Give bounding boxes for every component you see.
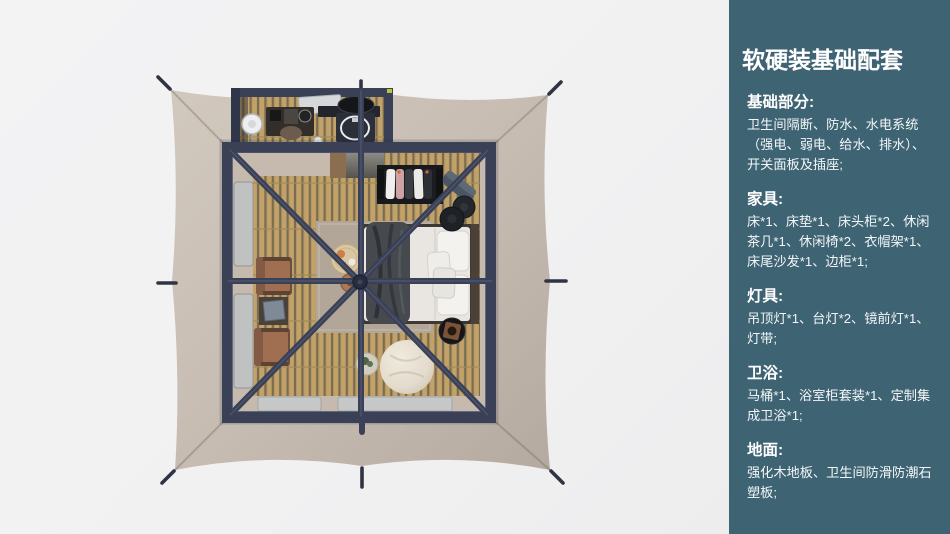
section-bathroom-body: 马桶*1、浴室柜套装*1、定制集 成卫浴*1; <box>747 386 934 426</box>
guy-stake-top-left <box>158 77 170 89</box>
window-bottom-right <box>338 397 452 411</box>
side-shelf <box>259 297 288 325</box>
tent-render-svg <box>0 0 729 534</box>
section-basics-body: 卫生间隔断、防水、水电系统 （强电、弱电、给水、排水）、 开关面板及插座; <box>747 115 934 175</box>
window-left-top <box>234 182 253 266</box>
section-bathroom: 卫浴: 马桶*1、浴室柜套装*1、定制集 成卫浴*1; <box>747 366 934 426</box>
headboard <box>471 224 479 324</box>
tent-render <box>0 0 729 534</box>
door-mat <box>330 153 346 178</box>
guy-stake-top-right <box>549 82 561 94</box>
section-floor: 地面: 强化木地板、卫生间防滑防潮石 塑板; <box>747 443 934 503</box>
section-lighting-body: 吊顶灯*1、台灯*2、镜前灯*1、 灯带; <box>747 309 934 349</box>
section-lighting: 灯具: 吊顶灯*1、台灯*2、镜前灯*1、 灯带; <box>747 289 934 349</box>
spec-sidebar: 软硬装基础配套 基础部分: 卫生间隔断、防水、水电系统 （强电、弱电、给水、排水… <box>729 0 950 534</box>
annex-round-mirror <box>338 97 374 114</box>
section-furniture-heading: 家具: <box>747 192 934 208</box>
annex-corner-marker <box>387 89 392 93</box>
garment-dark-2 <box>424 169 432 199</box>
garment-white-1 <box>385 169 395 199</box>
section-furniture-body: 床*1、床垫*1、床头柜*2、休闲 茶几*1、休闲椅*2、衣帽架*1、 床尾沙发… <box>747 212 934 272</box>
sidebar-title: 软硬装基础配套 <box>742 46 934 74</box>
slide: 软硬装基础配套 基础部分: 卫生间隔断、防水、水电系统 （强电、弱电、给水、排水… <box>0 0 950 534</box>
section-floor-body: 强化木地板、卫生间防滑防潮石 塑板; <box>747 463 934 503</box>
garment-white-2 <box>413 169 423 199</box>
side-table <box>439 318 465 344</box>
annex-right-wall <box>384 88 393 148</box>
section-floor-heading: 地面: <box>747 443 934 459</box>
section-furniture: 家具: 床*1、床垫*1、床头柜*2、休闲 茶几*1、休闲椅*2、衣帽架*1、 … <box>747 192 934 272</box>
section-basics: 基础部分: 卫生间隔断、防水、水电系统 （强电、弱电、给水、排水）、 开关面板及… <box>747 95 934 175</box>
annex-left-wall <box>231 88 240 148</box>
lounge-chair-top <box>256 257 292 295</box>
section-lighting-heading: 灯具: <box>747 289 934 305</box>
guy-stake-bottom-left <box>162 471 174 483</box>
clothes-rack <box>377 165 443 204</box>
window-bottom-left <box>258 397 321 411</box>
annex-top-wall <box>231 88 393 97</box>
center-hub <box>353 275 367 289</box>
guy-stake-bottom-right <box>551 471 563 483</box>
annex-desk <box>266 107 314 140</box>
section-bathroom-heading: 卫浴: <box>747 366 934 382</box>
garment-dark-1 <box>405 169 413 199</box>
window-left-bottom <box>234 294 253 388</box>
garment-pink <box>396 169 404 199</box>
section-basics-heading: 基础部分: <box>747 95 934 111</box>
bed <box>362 222 479 324</box>
